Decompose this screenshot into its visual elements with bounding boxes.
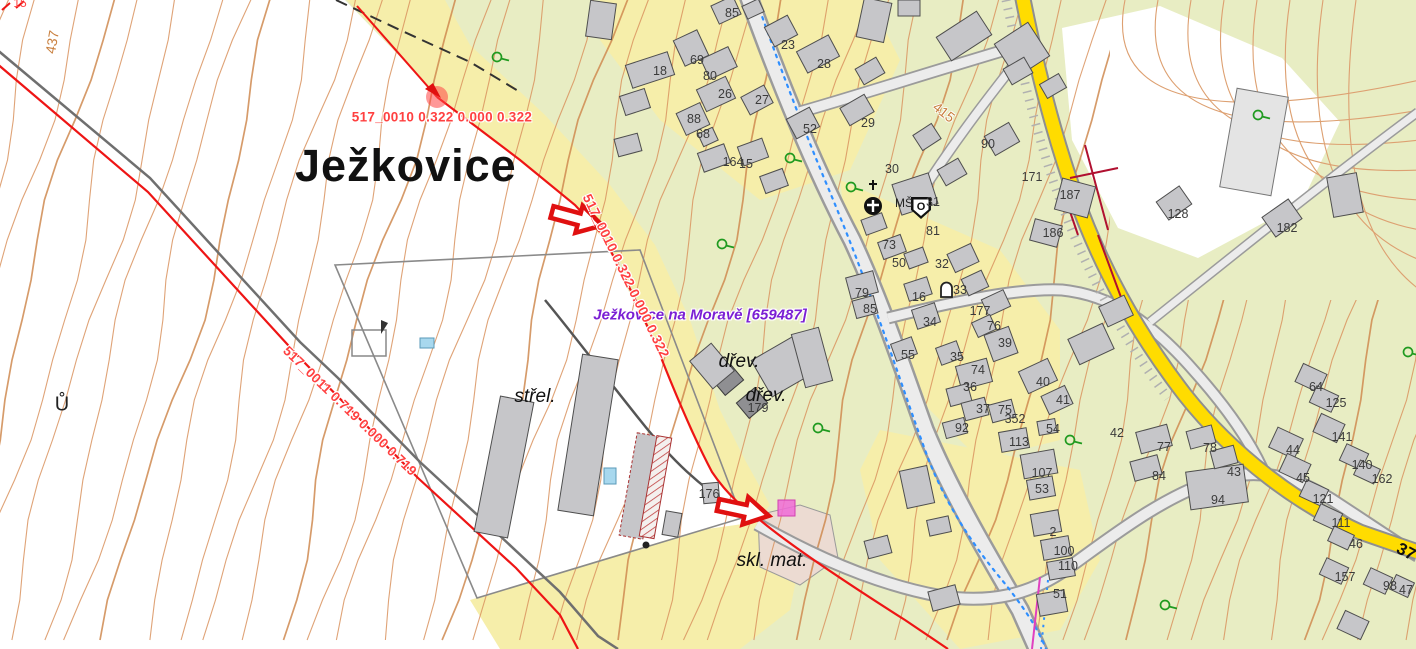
pool [420,338,434,348]
map-graphics: O [0,0,1416,649]
survey-point [643,542,650,549]
pool [604,468,616,484]
highlight-square [778,500,795,516]
map-canvas[interactable]: O Ježkovice Ježkovice na Moravě [659487]… [0,0,1416,649]
svg-text:O: O [917,201,926,213]
chapel-icon [941,283,952,297]
flag-mark [381,320,388,334]
